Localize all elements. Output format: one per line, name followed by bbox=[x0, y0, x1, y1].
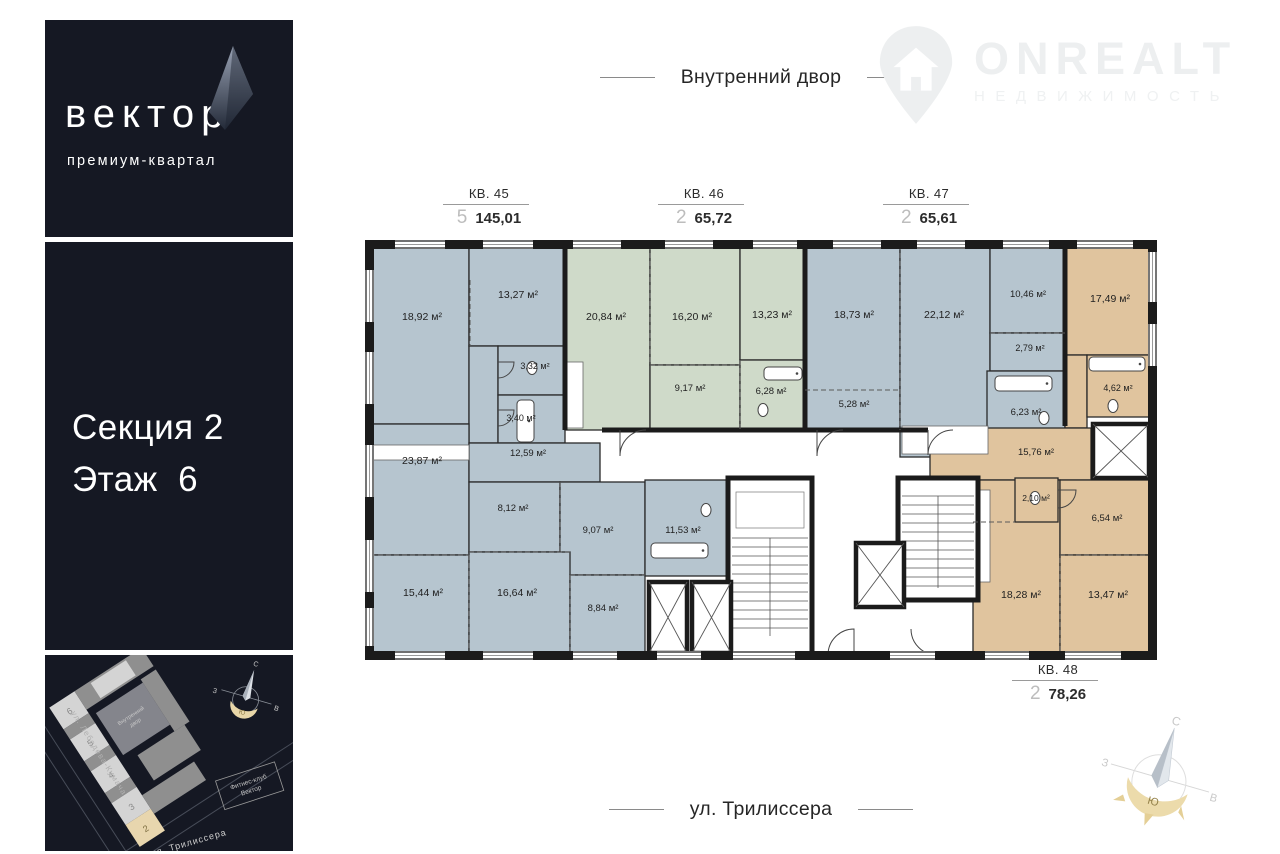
floor-plan: 18,92 м²13,27 м²3,32 м²3,40 м²23,87 м²12… bbox=[365, 240, 1157, 660]
vector-arrow-icon bbox=[203, 42, 265, 140]
room-area-label: 5,28 м² bbox=[839, 399, 870, 410]
svg-text:З: З bbox=[212, 688, 218, 696]
bottom-street-row: ул. Трилиссера bbox=[365, 798, 1157, 821]
elevator-shaft bbox=[649, 582, 687, 653]
apartment-number: КВ. 45 bbox=[443, 186, 535, 201]
room-area-label: 8,84 м² bbox=[588, 603, 619, 614]
divider-line bbox=[1012, 680, 1098, 681]
room-area-label: 23,87 м² bbox=[402, 455, 442, 467]
bathtub-icon bbox=[995, 376, 1052, 391]
compass-icon: С З В Ю bbox=[1085, 716, 1235, 848]
room-area-label: 6,23 м² bbox=[1011, 407, 1042, 418]
room-area-label: 15,76 м² bbox=[1018, 447, 1054, 458]
site-minimap: 6 5 4 3 2 Внутренний двор ул. Лебедева-К… bbox=[45, 655, 293, 851]
room-area-label: 18,73 м² bbox=[834, 309, 874, 321]
logo-panel: вектор премиум-квартал bbox=[45, 20, 293, 237]
room-area-label: 20,84 м² bbox=[586, 311, 626, 323]
room-area-label: 8,12 м² bbox=[498, 503, 529, 514]
apartment-number: КВ. 48 bbox=[1012, 662, 1104, 677]
toilet-icon bbox=[701, 504, 711, 517]
apartment-area: 65,61 bbox=[920, 210, 958, 227]
room-area-label: 3,40 м² bbox=[506, 413, 535, 423]
room-area-label: 9,07 м² bbox=[583, 525, 614, 536]
room-area-label: 22,12 м² bbox=[924, 309, 964, 321]
toilet-icon bbox=[758, 404, 768, 417]
apartment-area: 78,26 bbox=[1049, 686, 1087, 703]
bottom-street-label: ул. Трилиссера bbox=[690, 798, 833, 821]
svg-text:С: С bbox=[252, 661, 259, 669]
room-area-label: 6,54 м² bbox=[1092, 513, 1123, 524]
watermark-subtitle: НЕДВИЖИМОСТЬ bbox=[974, 88, 1237, 105]
page: вектор премиум-квартал Секция 2 Этаж 6 bbox=[0, 0, 1280, 854]
room-area-label: 13,23 м² bbox=[752, 309, 792, 321]
room-area-label: 6,28 м² bbox=[756, 386, 787, 397]
room-area-label: 16,64 м² bbox=[497, 587, 537, 599]
kitchen-counter bbox=[567, 362, 583, 428]
divider-line bbox=[443, 204, 529, 205]
svg-text:С: С bbox=[1170, 716, 1183, 729]
toilet-icon bbox=[1108, 400, 1118, 413]
section-floor-panel: Секция 2 Этаж 6 bbox=[45, 242, 293, 650]
plan-room bbox=[370, 245, 469, 424]
plan-room bbox=[370, 555, 469, 655]
room-count: 2 bbox=[1030, 683, 1041, 705]
apartment-area: 145,01 bbox=[475, 210, 521, 227]
room-area-label: 16,20 м² bbox=[672, 311, 712, 323]
bathtub-icon bbox=[1089, 357, 1145, 371]
brand-subtitle: премиум-квартал bbox=[67, 153, 217, 169]
room-area-label: 13,27 м² bbox=[498, 289, 538, 301]
top-street-row: Внутренний двор bbox=[365, 66, 1157, 89]
svg-text:В: В bbox=[273, 705, 280, 713]
room-area-label: 15,44 м² bbox=[403, 587, 443, 599]
plan-room bbox=[650, 365, 740, 430]
room-area-label: 4,62 м² bbox=[1103, 383, 1132, 393]
plan-room bbox=[469, 346, 498, 443]
divider-line bbox=[883, 204, 969, 205]
plan-room bbox=[650, 245, 740, 365]
minimap-panel: 6 5 4 3 2 Внутренний двор ул. Лебедева-К… bbox=[45, 655, 293, 851]
apartment-label: КВ. 48278,26 bbox=[1012, 662, 1104, 705]
elevator-shaft bbox=[1093, 424, 1149, 478]
divider-line bbox=[658, 204, 744, 205]
plan-room bbox=[370, 424, 469, 555]
room-area-label: 3,32 м² bbox=[520, 361, 549, 371]
plan-room bbox=[740, 245, 805, 360]
apartment-label: КВ. 455145,01 bbox=[443, 186, 535, 229]
apartment-number: КВ. 46 bbox=[658, 186, 750, 201]
plan-room bbox=[469, 552, 570, 655]
stairwell bbox=[728, 478, 812, 658]
apartment-number: КВ. 47 bbox=[883, 186, 975, 201]
dash-right bbox=[858, 809, 913, 811]
room-area-label: 18,92 м² bbox=[402, 311, 442, 323]
svg-text:З: З bbox=[1100, 757, 1110, 770]
room-count: 5 bbox=[457, 207, 468, 229]
room-area-label: 17,49 м² bbox=[1090, 293, 1130, 305]
room-area-label: 13,47 м² bbox=[1088, 589, 1128, 601]
apartment-area: 65,72 bbox=[695, 210, 733, 227]
room-count: 2 bbox=[901, 207, 912, 229]
stairwell bbox=[898, 478, 978, 600]
section-floor-label: Секция 2 Этаж 6 bbox=[72, 402, 224, 506]
top-street-label: Внутренний двор bbox=[681, 66, 842, 89]
room-count: 2 bbox=[676, 207, 687, 229]
minimap-compass-icon: С З В Ю bbox=[208, 655, 290, 728]
plan-room bbox=[469, 482, 560, 552]
room-area-label: 2,79 м² bbox=[1015, 343, 1044, 353]
room-area-label: 12,59 м² bbox=[510, 448, 546, 459]
dash-right bbox=[867, 77, 922, 79]
room-area-label: 11,53 м² bbox=[665, 525, 700, 536]
room-area-label: 9,17 м² bbox=[675, 383, 706, 394]
elevator-shaft bbox=[692, 582, 731, 653]
apartment-label: КВ. 46265,72 bbox=[658, 186, 750, 229]
bathtub-icon bbox=[651, 543, 708, 558]
plan-room bbox=[1060, 555, 1152, 655]
dash-left bbox=[600, 77, 655, 79]
plan-room bbox=[570, 575, 645, 655]
room-area-label: 18,28 м² bbox=[1001, 589, 1041, 601]
dash-left bbox=[609, 809, 664, 811]
elevator-shaft bbox=[856, 543, 904, 607]
room-area-label: 2,10 м² bbox=[1022, 493, 1050, 503]
plan-room bbox=[900, 245, 990, 457]
plan-room bbox=[1065, 355, 1087, 428]
apartment-label: КВ. 47265,61 bbox=[883, 186, 975, 229]
room-area-label: 10,46 м² bbox=[1010, 289, 1046, 300]
svg-text:В: В bbox=[1208, 792, 1218, 806]
